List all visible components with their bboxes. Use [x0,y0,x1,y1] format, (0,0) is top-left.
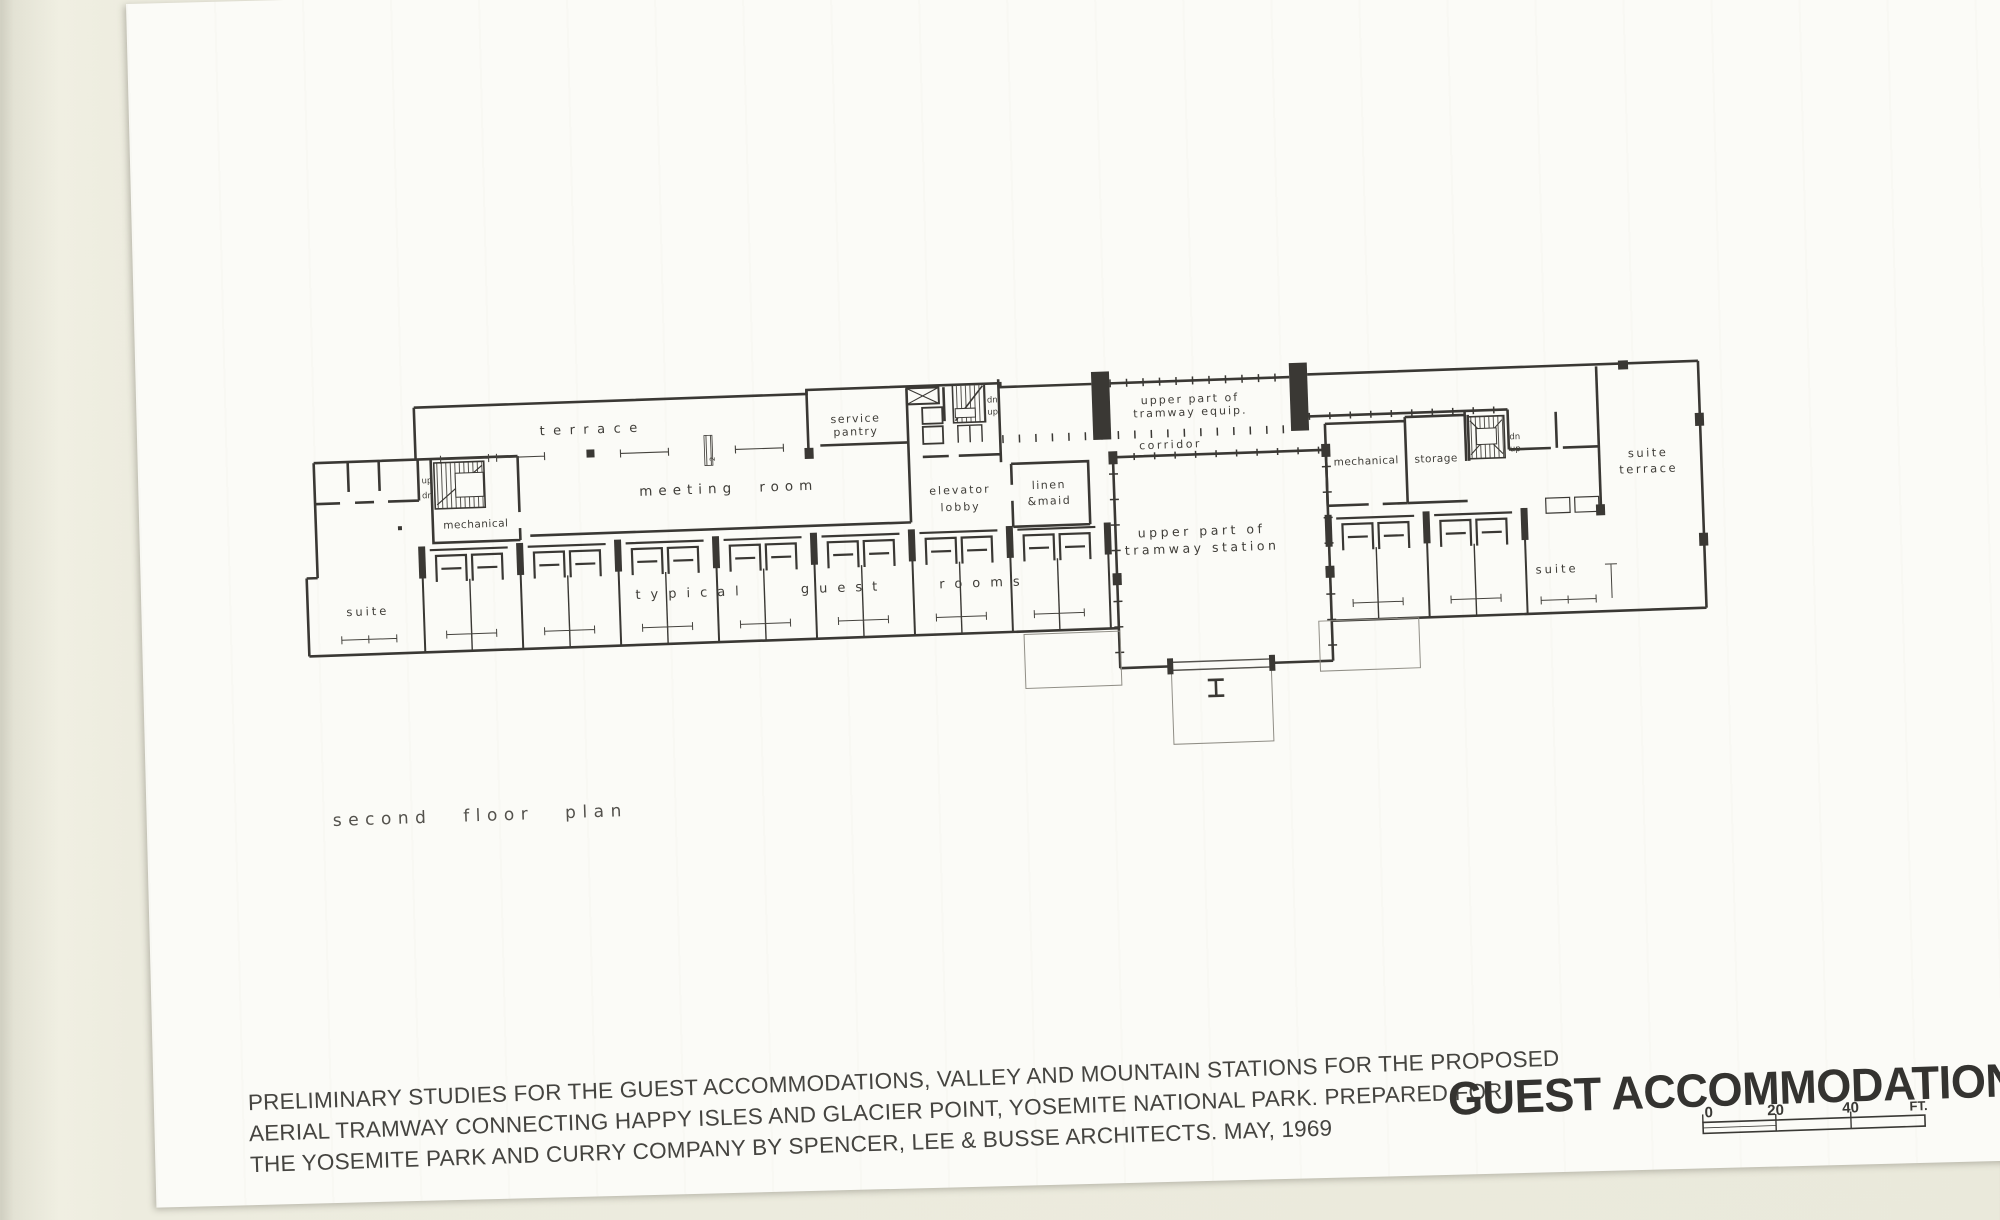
stair-mid-up-label: up [987,407,998,417]
room-label-tramway-station-2: tramway station [1125,538,1280,558]
section-marker: 2 [704,435,717,465]
room-label-linen-1: linen [1031,478,1066,492]
suite-beds [1546,496,1599,513]
room-label-mechanical-right: mechanical [1333,454,1399,468]
floor-plan: 2 [287,302,1731,792]
stair-left-up-label: up [421,476,432,486]
scale-bar: 0 20 40 FT. [1700,1097,1941,1144]
lower-level-outlines [1024,618,1423,750]
scale-tick-0: 0 [1704,1104,1713,1121]
room-label-tramway-station-1: upper part of [1137,521,1265,540]
room-label-service-pantry-2: pantry [833,424,878,439]
ibeam-icon [1208,680,1225,697]
bridge-caps [1167,655,1275,675]
section-marker-label: 2 [709,457,717,462]
main-walls [301,355,1708,697]
room-label-suite-left: suite [346,604,390,619]
project-description: PRELIMINARY STUDIES FOR THE GUEST ACCOMM… [247,1043,1562,1181]
stair-mid [952,384,985,423]
stair-left-dn-label: dn [422,491,433,501]
room-label-mechanical-left: mechanical [443,517,509,531]
paper-sheet: 2 [126,0,2000,1208]
plan-caption: second floor plan [332,801,628,831]
stair-mid-dn-label: dn [987,395,998,405]
room-label-suite-right: suite [1535,561,1579,576]
room-label-meeting-room: meeting room [639,478,819,500]
stair-right-dn-label: dn [1509,432,1520,442]
stair-right [1468,416,1505,459]
room-label-linen-2: &maid [1027,494,1071,509]
room-label-suite-terrace-1: suite [1628,445,1669,460]
terrace-railing [440,444,783,464]
stair-right-up-label: up [1510,444,1521,454]
room-label-storage: storage [1414,452,1458,466]
stair-left [434,461,486,509]
room-label-corridor: corridor [1139,437,1202,452]
room-label-elevator-lobby-1: elevator [929,483,991,498]
scan-background: 2 [0,0,2000,1220]
room-label-suite-terrace-2: terrace [1619,461,1678,477]
room-label-elevator-lobby-2: lobby [940,500,981,514]
scale-unit: FT. [1909,1098,1928,1114]
room-label-tramway-equip-2: tramway equip. [1133,404,1248,421]
room-label-terrace: terrace [539,421,646,440]
room-label-typical-guest-rooms: typical guest rooms [635,574,1030,603]
